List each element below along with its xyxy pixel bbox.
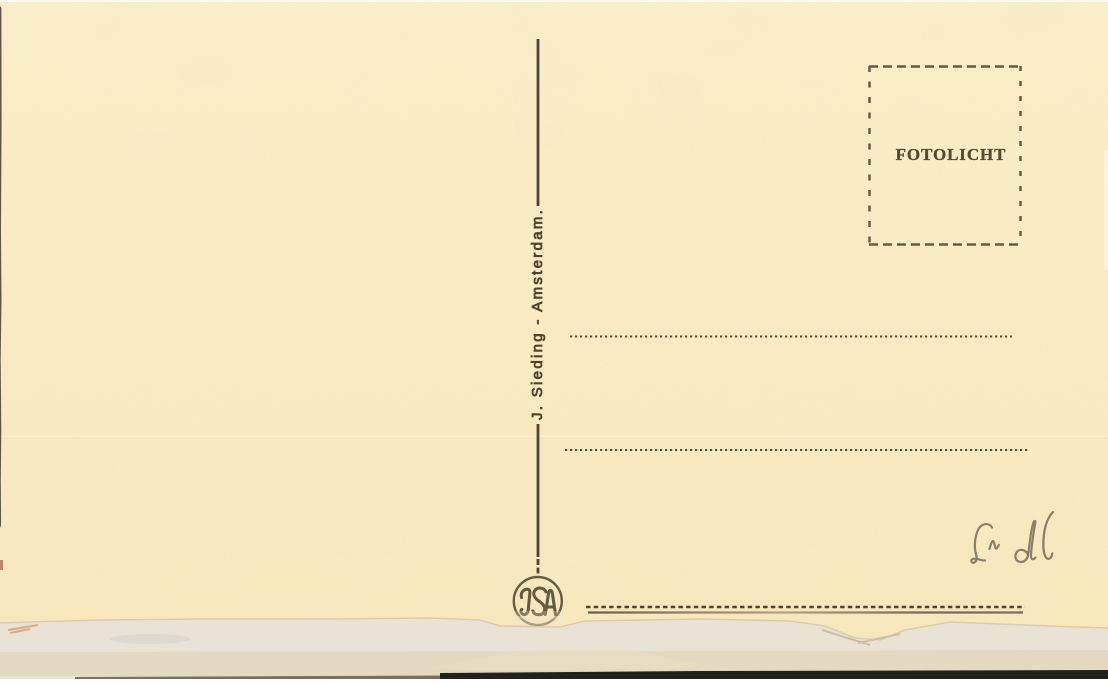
svg-text:J. Sieding - Amsterdam.: J. Sieding - Amsterdam. [529, 208, 546, 420]
svg-text:FOTOLICHT: FOTOLICHT [896, 145, 1007, 164]
